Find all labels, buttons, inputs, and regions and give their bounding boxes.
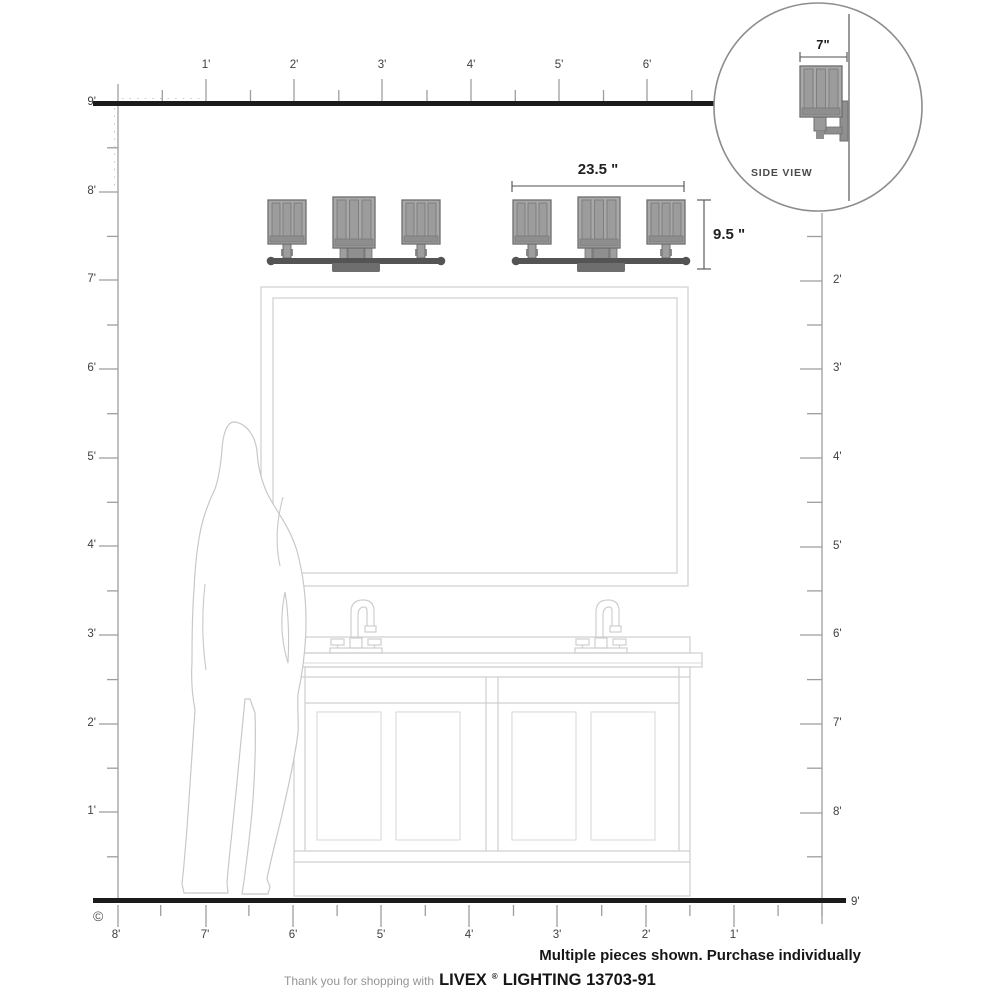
ruler-label: 7' (201, 929, 210, 941)
scale-figure (182, 422, 306, 894)
ruler-label: 5' (833, 540, 842, 552)
ruler-label: 8' (112, 929, 121, 941)
ruler-label: 3' (378, 59, 387, 71)
ruler-label: 6' (74, 362, 96, 374)
ruler-label: 5' (555, 59, 564, 71)
ruler-label: 2' (74, 717, 96, 729)
ruler-label: 9' (851, 896, 860, 908)
vanity-light-right (512, 197, 691, 272)
side-view-caption: SIDE VIEW (751, 167, 812, 179)
ruler-label: 8' (833, 806, 842, 818)
ruler-label: 2' (290, 59, 299, 71)
floor-line (93, 898, 846, 903)
ruler-label: 3' (833, 362, 842, 374)
depth-dimension-label: 7" (816, 37, 829, 52)
height-dimension-label: 9.5 " (713, 226, 745, 243)
ruler-label: 7' (833, 717, 842, 729)
ruler-label: 4' (467, 59, 476, 71)
top-height-line (93, 101, 716, 106)
ruler-label: 5' (377, 929, 386, 941)
copyright-mark: © (93, 908, 103, 924)
ruler-label: 4' (74, 539, 96, 551)
ruler-label: 6' (833, 628, 842, 640)
ruler-label: 4' (833, 451, 842, 463)
ruler-label: 3' (553, 929, 562, 941)
dimension-height-line (697, 200, 711, 269)
ruler-label: 3' (74, 628, 96, 640)
purchase-note: Multiple pieces shown. Purchase individu… (539, 947, 861, 964)
footer-thanks-text: Thank you for shopping with (284, 974, 434, 988)
width-dimension-label: 23.5 " (578, 161, 618, 178)
mirror (261, 287, 688, 586)
ruler-label: 6' (289, 929, 298, 941)
vanity-light-left (267, 197, 446, 272)
product-number: LIGHTING 13703-91 (503, 971, 656, 990)
dimension-width-line (512, 181, 684, 192)
ruler-label: 1' (730, 929, 739, 941)
ruler-label: 7' (74, 273, 96, 285)
vanity-cabinet (284, 637, 702, 896)
brand-name: LIVEX (439, 971, 487, 990)
ruler-right (800, 213, 822, 916)
ruler-label: 9' (74, 96, 96, 108)
faucet-left (330, 600, 382, 653)
ruler-label: 1' (202, 59, 211, 71)
ruler-label: 1' (74, 805, 96, 817)
ruler-label: 2' (642, 929, 651, 941)
ruler-left (99, 84, 118, 903)
ruler-bottom (118, 905, 822, 927)
ruler-label: 4' (465, 929, 474, 941)
side-view-inset (714, 3, 922, 211)
footer-line: Thank you for shopping with LIVEX ® LIGH… (284, 971, 656, 990)
dimension-diagram: 1' 2' 3' 4' 5' 6' 9' 8' 7' 6' 5' 4' 3' 2… (0, 0, 1000, 1000)
registered-mark: ® (492, 972, 498, 981)
ruler-label: 8' (74, 185, 96, 197)
faucet-right (575, 600, 627, 653)
ruler-top (122, 79, 692, 101)
ruler-label: 2' (833, 274, 842, 286)
ruler-label: 6' (643, 59, 652, 71)
ruler-label: 5' (74, 451, 96, 463)
diagram-canvas (0, 0, 1000, 1000)
